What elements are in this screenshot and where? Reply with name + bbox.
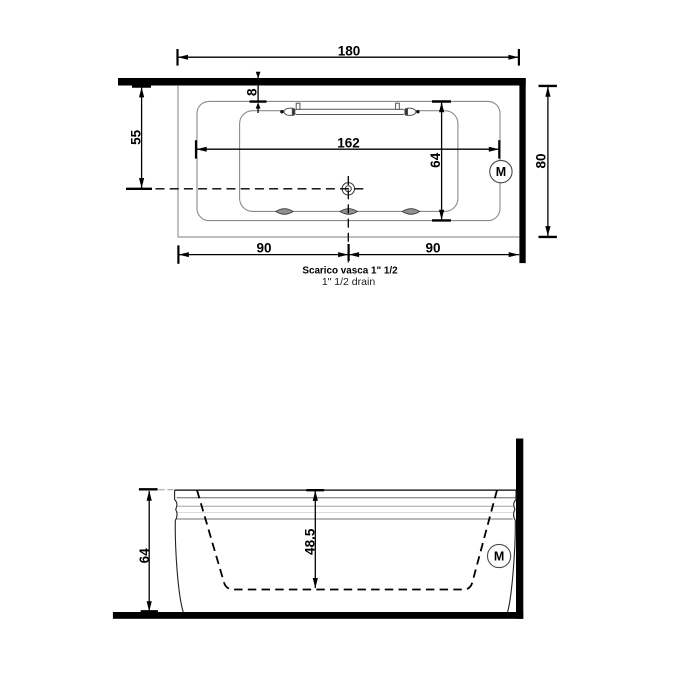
svg-text:64: 64	[428, 152, 443, 168]
svg-text:162: 162	[337, 135, 360, 150]
svg-text:90: 90	[256, 241, 271, 256]
svg-text:90: 90	[425, 241, 440, 256]
svg-text:48.5: 48.5	[302, 528, 317, 555]
svg-text:M: M	[494, 550, 504, 564]
svg-text:80: 80	[534, 153, 549, 168]
svg-text:64: 64	[137, 548, 152, 564]
svg-text:1" 1/2 drain: 1" 1/2 drain	[322, 276, 376, 288]
svg-text:180: 180	[338, 43, 361, 58]
svg-text:M: M	[496, 165, 506, 179]
svg-text:55: 55	[128, 129, 143, 145]
svg-text:8: 8	[245, 88, 260, 96]
